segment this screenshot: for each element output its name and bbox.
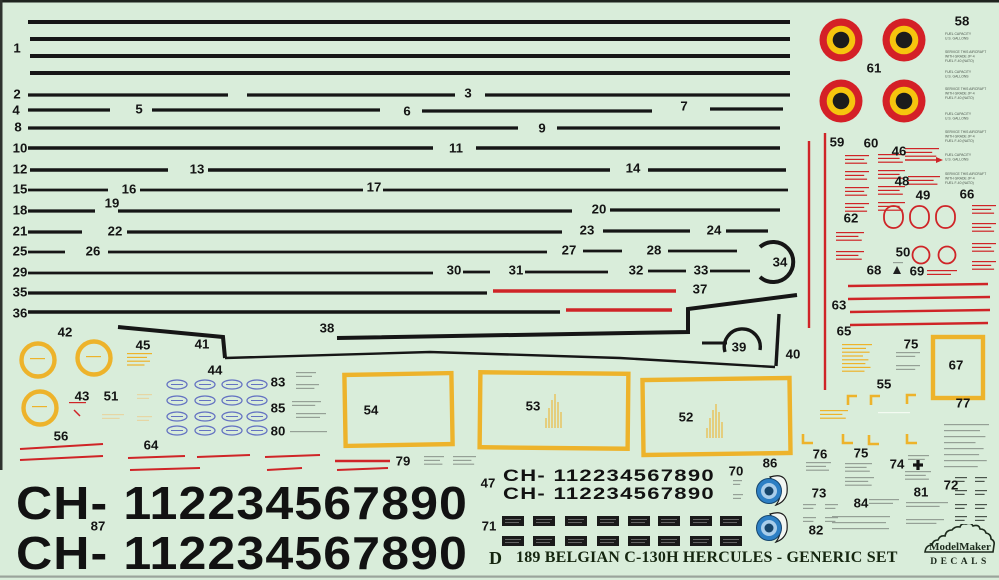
part-number-label: 39 [732, 340, 747, 355]
part-number-label: 84 [854, 496, 869, 511]
part-number-label: 33 [694, 263, 709, 278]
part-number-label: 3 [464, 86, 471, 101]
brand-logo: ModelMaker DECALS [921, 524, 999, 578]
code-box-decal [533, 536, 555, 546]
corner-bracket-decal [848, 396, 857, 405]
stencil-note-text: WITH GRADE JP-4 [945, 176, 975, 180]
stencil-note-text: SERVICE THIS AIRCRAFT [945, 50, 986, 54]
stencil-text-line [908, 184, 937, 185]
red-stripe-decal [197, 455, 250, 457]
stencil-text-line [845, 477, 874, 478]
code-box-decal [628, 516, 650, 526]
part-number-label: 76 [813, 447, 828, 462]
stencil-text-line [878, 210, 903, 211]
stencil-text-line [137, 394, 152, 395]
stencil-text-line [842, 363, 865, 364]
stencil-text-line [820, 418, 846, 419]
code-box-decal [597, 536, 619, 546]
part-number-label: 63 [832, 298, 847, 313]
stencil-text-line [908, 455, 929, 456]
stencil-text-line [972, 247, 991, 248]
stencil-text-line [292, 405, 315, 406]
stencil-text-line [972, 223, 996, 224]
part-number-label: 59 [830, 135, 845, 150]
stencil-text-line [845, 155, 869, 156]
triangle-icon [893, 266, 901, 274]
stencil-text-line [908, 176, 940, 177]
stencil-text-line [972, 243, 996, 244]
stencil-text-line [836, 259, 862, 260]
part-number-label: 6 [403, 104, 410, 119]
stencil-text-line [296, 413, 326, 414]
part-number-label: 42 [58, 325, 73, 340]
part-number-label: 46 [892, 144, 907, 159]
part-number-label: 74 [890, 457, 905, 472]
part-number-label: 8 [14, 120, 21, 135]
stencil-text-line [905, 471, 931, 472]
part-number-label: 30 [447, 263, 462, 278]
stencil-text-line [845, 159, 864, 160]
stencil-text-line [975, 490, 987, 491]
stencil-text-line [878, 194, 903, 195]
red-stripe-decal [20, 444, 103, 449]
part-number-label: 11 [449, 141, 463, 156]
stencil-text-line [845, 175, 864, 176]
part-number-label: 52 [679, 410, 694, 425]
part-number-label: 38 [320, 321, 335, 336]
stencil-text-line [972, 265, 991, 266]
registration-text: CH- 112234567890 [503, 466, 715, 485]
corner-bracket-decal [869, 435, 879, 444]
stencil-text-line [733, 480, 742, 481]
plate-letter: D [489, 548, 502, 569]
stencil-text-line [905, 156, 936, 157]
red-stripe-decal [20, 456, 103, 460]
stencil-text-line [906, 502, 948, 503]
part-number-label: 36 [13, 306, 28, 321]
brand-name: ModelMaker [929, 541, 991, 553]
stencil-text-line [845, 481, 868, 482]
stencil-text-line [869, 503, 893, 504]
part-number-label: 47 [481, 476, 496, 491]
stencil-text-line [803, 517, 816, 518]
stencil-note-text: FUEL F-40 (NATO) [945, 181, 974, 185]
stencil-note-text: U.S. GALLONS [945, 74, 969, 78]
registration-text: CH- 112234567890 [503, 484, 715, 503]
stencil-text-line [972, 227, 991, 228]
stencil-text-line [845, 207, 864, 208]
stencil-text-line [955, 516, 967, 517]
part-number-label: 24 [707, 223, 722, 238]
part-number-label: 45 [136, 338, 151, 353]
stencil-text-line [102, 418, 120, 419]
stencil-note-text: FUEL F-40 (NATO) [945, 59, 974, 63]
stencil-text-line [296, 388, 314, 389]
part-number-label: 72 [944, 478, 959, 493]
part-number-label: 21 [13, 224, 28, 239]
red-stripe-decal [265, 455, 320, 457]
stencil-text-line [836, 251, 864, 252]
stencil-text-line [878, 190, 900, 191]
stencil-text-line [842, 367, 871, 368]
part-number-label: 70 [729, 464, 744, 479]
stencil-text-line [832, 528, 889, 529]
red-stripe-decal [130, 468, 200, 470]
part-number-label: 65 [837, 324, 852, 339]
part-number-label: 48 [895, 174, 910, 189]
part-number-label: 58 [955, 14, 970, 29]
stencil-text-line [944, 430, 980, 431]
stencil-text-line [975, 481, 985, 482]
stencil-text-line [975, 504, 987, 505]
stencil-text-line [955, 504, 967, 505]
code-box-decal [502, 516, 524, 526]
part-number-label: 75 [904, 337, 919, 352]
stencil-text-line [836, 240, 862, 241]
stencil-text-line [292, 401, 321, 402]
code-box-decal [565, 516, 587, 526]
stencil-note-text: FUEL CAPACITY [945, 112, 972, 116]
stencil-text-line [820, 410, 848, 411]
part-number-label: 23 [580, 223, 595, 238]
decal-sheet: FUEL CAPACITYU.S. GALLONSSERVICE THIS AI… [0, 0, 999, 580]
stencil-text-line [296, 372, 316, 373]
red-stadium-decal [884, 206, 903, 228]
stencil-text-line [972, 209, 991, 210]
red-stripe-decal [848, 284, 988, 286]
part-number-label: 79 [396, 454, 411, 469]
part-number-label: 14 [626, 161, 641, 176]
stencil-text-line [975, 520, 985, 521]
part-number-label: 77 [956, 396, 971, 411]
part-number-label: 26 [86, 244, 101, 259]
stencil-text-line [290, 431, 327, 432]
part-number-label: 43 [75, 389, 90, 404]
stencil-text-line [820, 414, 842, 415]
part-number-label: 35 [13, 285, 28, 300]
stencil-text-line [137, 420, 149, 421]
sheet-edge [0, 0, 999, 3]
stencil-text-line [806, 462, 831, 463]
part-number-label: 82 [809, 523, 824, 538]
part-number-label: 9 [538, 121, 545, 136]
stencil-text-line [825, 508, 835, 509]
stencil-note-text: SERVICE THIS AIRCRAFT [945, 130, 986, 134]
squadron-badge-core [765, 524, 774, 533]
stencil-text-line [845, 471, 870, 472]
stencil-text-line [972, 269, 994, 270]
stencil-text-line [845, 191, 864, 192]
stencil-text-line [296, 384, 319, 385]
stencil-text-line [972, 261, 996, 262]
roundel-core [833, 93, 850, 110]
stencil-note-text: SERVICE THIS AIRCRAFT [945, 172, 986, 176]
stencil-text-line [908, 180, 934, 181]
corner-bracket-decal [803, 434, 813, 443]
stencil-note-text: WITH GRADE JP-4 [945, 134, 975, 138]
part-number-label: 44 [208, 363, 223, 378]
part-number-label: 12 [13, 162, 28, 177]
stencil-text-line [127, 361, 150, 362]
stencil-note-text: U.S. GALLONS [945, 36, 969, 40]
stencil-text-line [842, 355, 863, 356]
part-number-label: 34 [773, 255, 788, 270]
stencil-text-line [30, 358, 45, 359]
stencil-text-line [832, 522, 886, 523]
stencil-text-line [803, 508, 813, 509]
stencil-text-line [137, 398, 149, 399]
part-number-label: 53 [526, 399, 541, 414]
stencil-text-line [972, 205, 996, 206]
stencil-text-line [424, 460, 440, 461]
part-number-label: 71 [482, 519, 497, 534]
stencil-text-line [453, 456, 476, 457]
stencil-text-line [955, 520, 965, 521]
stencil-text-line [878, 206, 900, 207]
cross-icon [913, 463, 923, 466]
stencil-text-line [927, 270, 957, 271]
decal-sheet-graphic: FUEL CAPACITYU.S. GALLONSSERVICE THIS AI… [0, 0, 999, 580]
code-box-decal [502, 536, 524, 546]
stencil-text-line [896, 352, 920, 353]
curve-decal [225, 352, 775, 367]
stencil-text-line [944, 424, 989, 425]
red-stripe-decal [850, 323, 988, 325]
stencil-text-line [86, 356, 101, 357]
part-number-label: 19 [105, 196, 120, 211]
stencil-text-line [975, 477, 987, 478]
stencil-text-line [806, 466, 826, 467]
part-number-label: 28 [647, 243, 662, 258]
stencil-text-line [453, 464, 474, 465]
stencil-text-line [878, 170, 905, 171]
stencil-note-text: FUEL F-40 (NATO) [945, 96, 974, 100]
curve-decal [776, 314, 779, 366]
stencil-text-line [845, 203, 869, 204]
part-number-label: 73 [812, 486, 827, 501]
part-number-label: 67 [949, 358, 964, 373]
part-number-label: 68 [867, 263, 882, 278]
stencil-text-line [825, 504, 838, 505]
stencil-note-text: WITH GRADE JP-4 [945, 54, 975, 58]
part-number-label: 31 [509, 263, 524, 278]
stencil-note-text: FUEL F-40 (NATO) [945, 139, 974, 143]
stencil-text-line [32, 406, 47, 407]
part-number-label: 64 [144, 438, 159, 453]
part-number-label: 29 [13, 265, 28, 280]
yellow-panel-decal [480, 372, 629, 449]
stencil-text-line [975, 508, 985, 509]
stencil-text-line [424, 456, 444, 457]
stencil-text-line [944, 442, 976, 443]
part-number-label: 81 [914, 485, 929, 500]
stencil-text-line [825, 521, 835, 522]
red-stripe-decal [267, 468, 302, 470]
part-number-label: 22 [108, 224, 123, 239]
part-number-label: 17 [367, 180, 382, 195]
sheet-edge [0, 0, 3, 470]
part-number-label: 15 [13, 182, 28, 197]
stencil-text-line [905, 479, 929, 480]
part-number-label: 55 [877, 377, 892, 392]
part-number-label: 54 [364, 403, 379, 418]
stencil-text-line [137, 416, 152, 417]
stencil-note-text: SERVICE THIS AIRCRAFT [945, 87, 986, 91]
red-stadium-decal [910, 206, 929, 228]
stencil-text-line [733, 494, 743, 495]
red-stripe-decal [128, 456, 185, 458]
stencil-text-line [127, 357, 147, 358]
stencil-text-line [845, 179, 867, 180]
red-stripe-decal [850, 310, 990, 312]
stencil-text-line [733, 498, 741, 499]
stencil-text-line [906, 506, 940, 507]
yellow-ring-decal [78, 342, 111, 375]
stencil-text-line [893, 262, 903, 263]
stencil-text-line [733, 484, 740, 485]
stencil-text-line [972, 251, 994, 252]
part-number-label: 75 [854, 446, 869, 461]
stencil-text-line [424, 464, 442, 465]
code-box-decal [565, 536, 587, 546]
stencil-text-line [896, 369, 915, 370]
stencil-text-line [806, 470, 829, 471]
stencil-text-line [955, 508, 965, 509]
stencil-note-text: U.S. GALLONS [945, 157, 969, 161]
stencil-text-line [127, 364, 145, 365]
stencil-text-line [944, 466, 978, 467]
stencil-text-line [896, 356, 915, 357]
stencil-text-line [905, 152, 932, 153]
part-number-label: 66 [960, 187, 975, 202]
stencil-text-line [944, 454, 979, 455]
stencil-text-line [296, 376, 312, 377]
squadron-badge-core [765, 487, 774, 496]
corner-bracket-decal [907, 395, 916, 404]
stencil-text-line [905, 475, 926, 476]
stencil-text-line [803, 504, 816, 505]
code-box-decal [628, 536, 650, 546]
red-arrowhead [936, 157, 943, 163]
stencil-text-line [845, 467, 867, 468]
red-stadium-decal [936, 206, 955, 228]
part-number-label: 80 [271, 424, 286, 439]
stencil-text-line [927, 274, 951, 275]
part-number-label: 50 [896, 245, 911, 260]
stencil-text-line [842, 348, 866, 349]
stencil-text-line [836, 232, 864, 233]
part-number-label: 25 [13, 244, 28, 259]
code-box-decal [597, 516, 619, 526]
stencil-text-line [975, 516, 987, 517]
stencil-text-line [944, 448, 984, 449]
stencil-text-line [127, 353, 152, 354]
red-stripe-decal [74, 410, 80, 416]
stencil-text-line [842, 344, 872, 345]
stencil-text-line [878, 162, 903, 163]
stencil-text-line [878, 412, 910, 413]
stencil-text-line [845, 195, 867, 196]
code-box-decal [720, 536, 742, 546]
stencil-note-text: FUEL CAPACITY [945, 153, 972, 157]
stencil-text-line [896, 365, 920, 366]
part-number-label: 7 [680, 99, 687, 114]
red-circle-decal [939, 247, 956, 264]
corner-bracket-decal [843, 434, 853, 443]
stencil-text-line [908, 459, 925, 460]
part-number-label: 51 [104, 389, 119, 404]
part-number-label: 49 [916, 188, 931, 203]
part-number-label: 56 [54, 429, 69, 444]
stencil-text-line [944, 460, 987, 461]
part-number-label: 86 [763, 456, 778, 471]
stencil-note-text: U.S. GALLONS [945, 116, 969, 120]
part-number-label: 27 [562, 243, 577, 258]
part-number-label: 5 [135, 102, 142, 117]
part-number-label: 13 [190, 162, 205, 177]
stencil-text-line [832, 516, 890, 517]
code-box-decal [690, 516, 712, 526]
part-number-label: 60 [864, 136, 879, 151]
stencil-text-line [102, 414, 124, 415]
stencil-note-text: WITH GRADE JP-4 [945, 91, 975, 95]
stencil-text-line [906, 519, 944, 520]
red-stripe-decal [337, 468, 388, 470]
code-box-decal [658, 516, 680, 526]
yellow-ring-decal [22, 344, 55, 377]
part-number-label: 37 [693, 282, 708, 297]
stencil-text-line [296, 417, 320, 418]
sheet-title: 189 BELGIAN C-130H HERCULES - GENERIC SE… [516, 549, 940, 567]
yellow-panel-decal [344, 373, 452, 446]
stencil-text-line [845, 171, 869, 172]
part-number-label: 20 [592, 202, 607, 217]
corner-bracket-decal [907, 434, 917, 443]
stencil-text-line [972, 213, 994, 214]
part-number-label: 2 [13, 87, 20, 102]
stencil-text-line [869, 499, 899, 500]
brand-sub: DECALS [930, 557, 990, 567]
curve-decal [337, 295, 797, 338]
stencil-text-line [842, 359, 868, 360]
stencil-note-text: FUEL CAPACITY [945, 70, 972, 74]
roundel-core [896, 93, 913, 110]
stencil-text-line [975, 494, 985, 495]
stencil-text-line [878, 202, 905, 203]
code-box-decal [720, 516, 742, 526]
stencil-text-line [453, 460, 471, 461]
stencil-text-line [944, 436, 985, 437]
part-number-label: 61 [867, 61, 882, 76]
stencil-text-line [905, 148, 939, 149]
part-number-label: 83 [271, 375, 286, 390]
part-number-label: 62 [844, 211, 859, 226]
code-box-decal [690, 536, 712, 546]
part-number-label: 10 [13, 141, 28, 156]
part-number-label: 41 [195, 337, 210, 352]
stencil-text-line [972, 231, 994, 232]
stencil-note-text: FUEL CAPACITY [945, 32, 972, 36]
yellow-ring-decal [24, 392, 57, 425]
code-box-decal [533, 516, 555, 526]
part-number-label: 40 [786, 347, 801, 362]
roundel-core [833, 32, 850, 49]
roundel-core [896, 32, 913, 49]
stencil-text-line [845, 463, 872, 464]
code-box-decal [658, 536, 680, 546]
part-number-label: 32 [629, 263, 644, 278]
part-number-label: 1 [13, 41, 20, 56]
